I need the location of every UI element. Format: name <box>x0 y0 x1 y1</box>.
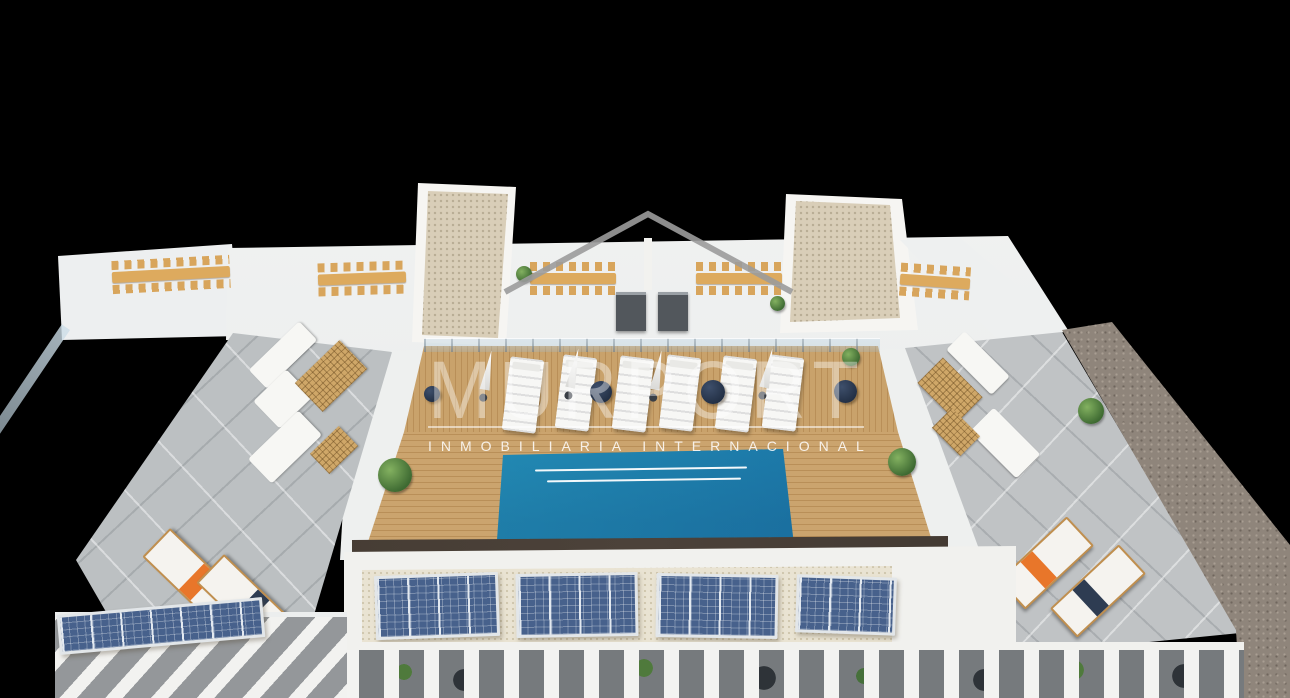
penthouse-balconies-pergolas <box>344 642 1244 698</box>
potted-plant <box>842 348 860 366</box>
dining-set <box>530 262 616 295</box>
chimney <box>644 238 652 290</box>
chairs-row <box>696 262 782 271</box>
navy-pouf-table <box>701 380 725 404</box>
navy-pouf-table <box>590 381 612 403</box>
palm-plant <box>888 448 916 476</box>
bbq-cabinet <box>658 292 688 331</box>
dining-table <box>318 271 406 285</box>
navy-pouf-table <box>834 380 857 403</box>
navy-towel <box>1073 579 1109 616</box>
chairs-row <box>317 260 405 272</box>
dining-set <box>317 260 406 296</box>
chairs-row <box>696 286 782 295</box>
dining-table <box>530 273 616 284</box>
solar-panel-array <box>655 573 778 639</box>
dining-table <box>696 273 782 284</box>
solar-panel-array <box>795 574 897 635</box>
dining-set <box>111 255 231 294</box>
left-glass-balustrade <box>0 324 70 563</box>
solar-panel-array <box>515 572 638 638</box>
chairs-row <box>530 286 616 295</box>
navy-pouf-table <box>424 386 440 402</box>
rooftop-render-image: MURPORT INMOBILIARIA INTERNACIONAL <box>0 0 1290 698</box>
potted-plant <box>516 266 532 282</box>
chairs-row <box>530 262 616 271</box>
orange-towel <box>1021 551 1057 588</box>
solar-panel-array <box>374 572 500 640</box>
dining-set <box>899 263 971 301</box>
palm-plant <box>1078 398 1104 424</box>
potted-plant <box>770 296 785 311</box>
dining-set <box>696 262 782 295</box>
palm-plant <box>378 458 412 492</box>
bbq-cabinet <box>616 292 646 331</box>
